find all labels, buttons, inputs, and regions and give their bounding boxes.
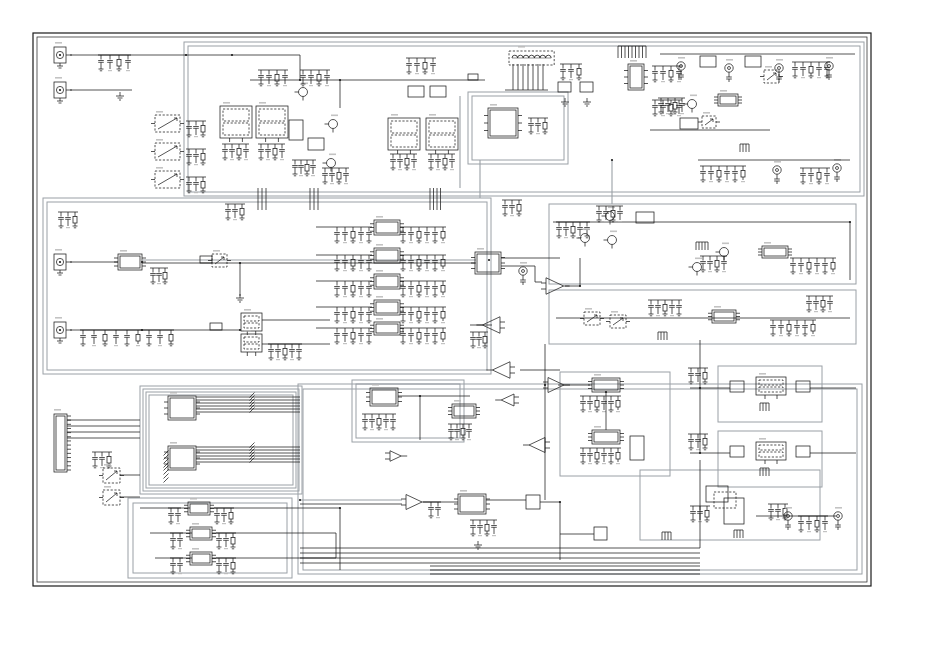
opamp-symbol-232	[523, 438, 550, 453]
rc-ladder-186	[168, 508, 181, 524]
connector-comb-83	[740, 144, 749, 152]
schematic-page	[0, 0, 950, 672]
rc-ladder-132	[400, 281, 446, 297]
rc-ladder-44	[428, 154, 455, 170]
component-box-239	[796, 381, 810, 392]
transistor-symbol-32	[151, 139, 184, 160]
rc-ladder-56	[406, 58, 436, 74]
component-box-20	[640, 470, 820, 540]
component-box-238	[730, 381, 744, 392]
transistor-symbol-77	[760, 66, 783, 83]
transistor-symbol-105	[208, 250, 231, 267]
connector-ring-72	[725, 59, 733, 82]
transistor-symbol-162	[580, 308, 604, 325]
schematic-svg	[0, 0, 950, 672]
rc-ladder-137	[334, 328, 372, 344]
transistor-can-157	[689, 258, 703, 276]
ic-chip-177	[164, 442, 200, 470]
rc-ladder-35	[186, 149, 206, 165]
transistor-pair-box-243	[756, 438, 786, 464]
rc-ladder-146	[502, 200, 522, 216]
ic-chip-185	[184, 498, 214, 515]
rc-ladder-39	[222, 144, 249, 160]
rc-ladder-187	[214, 508, 234, 524]
ic-chip-101	[114, 250, 146, 270]
rc-ladder-249	[688, 368, 708, 384]
net-wire-94	[430, 188, 441, 210]
component-box-211	[594, 527, 607, 540]
transistor-pair-box-41	[388, 114, 420, 154]
rc-ladder-191	[170, 533, 183, 549]
connector-jack-22	[54, 42, 72, 68]
rc-ladder-80	[700, 166, 746, 182]
transistor-symbol-31	[151, 111, 184, 132]
component-box-6	[298, 384, 862, 574]
ic-chip-190	[186, 523, 216, 540]
rc-ladder-78	[792, 62, 830, 78]
transistor-can-156	[716, 243, 730, 261]
rc-ladder-43	[390, 154, 417, 170]
rc-ladder-197	[216, 558, 236, 574]
net-wire-142	[501, 266, 542, 282]
net-wire-93	[310, 188, 318, 210]
connector-ring-74	[825, 57, 833, 80]
rc-ladder-53	[300, 70, 330, 86]
component-box-18	[718, 366, 822, 422]
component-box-11	[149, 395, 293, 485]
rc-ladder-36	[186, 177, 206, 193]
rc-ladder-86	[658, 98, 685, 114]
component-box-55	[430, 86, 446, 97]
transistor-symbol-172	[99, 464, 124, 483]
rc-ladder-51	[322, 168, 349, 184]
rc-ladder-216	[362, 414, 396, 430]
connector-comb-240	[760, 403, 769, 411]
net-wire-170	[67, 420, 140, 438]
transistor-pair-box-37	[220, 102, 252, 142]
rc-ladder-210	[470, 520, 497, 536]
rc-ladder-235	[470, 332, 488, 348]
net-wire-92	[258, 188, 266, 210]
transistor-pair-box-237	[756, 373, 786, 399]
transistor-pair-box-42	[426, 114, 458, 154]
ic-chip-68	[624, 60, 648, 90]
net-wire-58	[513, 64, 543, 90]
rc-ladder-225	[580, 448, 621, 464]
rc-ladder-62	[560, 64, 582, 80]
transistor-can-47	[295, 83, 309, 101]
component-box-48	[289, 120, 303, 140]
ic-chip-140	[471, 248, 505, 274]
rc-ladder-61	[528, 118, 548, 134]
ic-chip-165	[708, 306, 740, 323]
connector-comb-261	[662, 532, 671, 540]
component-box-21	[560, 372, 670, 476]
ic-chip-123	[370, 296, 404, 315]
rc-ladder-171	[92, 452, 112, 468]
component-box-252	[706, 486, 728, 502]
ic-chip-120	[370, 216, 404, 235]
rc-ladder-135	[400, 307, 446, 323]
rc-ladder-168	[806, 296, 833, 312]
ic-chip-124	[370, 318, 404, 335]
net-wire-179	[196, 447, 300, 462]
rc-ladder-109	[58, 212, 78, 228]
component-box-245	[796, 446, 810, 457]
ground-symbol-27	[116, 92, 124, 100]
connector-comb-67	[618, 46, 646, 58]
rc-ladder-250	[688, 434, 708, 450]
transformer-coil-57	[509, 46, 554, 65]
rc-ladder-166	[770, 320, 816, 336]
rc-ladder-125	[334, 227, 372, 243]
ic-chip-122	[370, 270, 404, 289]
ground-symbol-66	[583, 98, 591, 106]
component-box-226	[630, 436, 644, 460]
junction-dots-267	[141, 54, 851, 509]
component-box-63	[558, 82, 571, 92]
rc-ladder-119	[225, 204, 245, 220]
component-box-244	[730, 446, 744, 457]
rc-ladder-160	[596, 206, 623, 222]
net-wire-178	[196, 397, 300, 412]
rc-ladder-126	[400, 227, 446, 243]
ic-chip-60	[484, 104, 522, 138]
ic-chip-195	[186, 548, 216, 565]
rc-ladder-256	[768, 504, 788, 520]
component-box-76	[745, 56, 761, 67]
ic-chip-176	[164, 392, 200, 420]
component-box-208	[526, 495, 540, 509]
net-wire-264	[430, 566, 700, 574]
transistor-pair-box-38	[256, 102, 288, 142]
ic-chip-91	[714, 90, 742, 106]
rc-ladder-196	[170, 558, 183, 574]
component-box-75	[700, 56, 716, 67]
ic-chip-215	[366, 384, 402, 406]
transistor-pair-box-115	[241, 330, 262, 356]
connector-ring-145	[519, 262, 527, 285]
net-wire-144	[565, 258, 580, 286]
pin-header-169	[54, 409, 71, 472]
connector-ring-71	[677, 57, 685, 80]
rc-ladder-205	[428, 502, 441, 518]
connector-comb-255	[734, 530, 743, 538]
ground-symbol-108	[236, 294, 244, 302]
connector-ring-257	[784, 507, 792, 530]
rc-ladder-164	[648, 300, 682, 316]
rc-ladder-40	[258, 144, 285, 160]
net-wire-263	[300, 548, 700, 563]
rc-ladder-112	[80, 330, 174, 346]
rc-ladder-223	[580, 396, 621, 412]
component-box-64	[580, 82, 593, 92]
connector-ring-82	[833, 159, 841, 182]
rc-ladder-24	[98, 55, 131, 71]
rc-ladder-50	[292, 160, 316, 176]
rc-ladder-192	[216, 533, 236, 549]
rc-ladder-34	[186, 121, 206, 137]
connector-ring-81	[773, 161, 781, 184]
opamp-symbol-219	[385, 451, 407, 462]
transistor-symbol-173	[99, 486, 124, 505]
rc-ladder-158	[790, 258, 836, 274]
rc-ladder-118	[268, 344, 302, 360]
connector-comb-246	[760, 468, 769, 476]
component-box-19	[718, 431, 822, 487]
component-box-253	[714, 492, 736, 508]
transistor-symbol-88	[698, 112, 720, 128]
component-box-54	[408, 86, 424, 97]
transistor-symbol-163	[606, 311, 630, 328]
component-box-113	[210, 323, 222, 330]
connector-comb-153	[696, 242, 708, 250]
rc-ladder-134	[334, 307, 372, 323]
connector-jack-99	[54, 249, 72, 275]
ic-chip-206	[454, 490, 490, 514]
transistor-symbol-33	[151, 167, 184, 188]
rc-ladder-154	[700, 256, 727, 272]
rc-ladder-259	[798, 516, 828, 532]
connector-jack-25	[54, 77, 72, 103]
resistor-array-hatch-181	[250, 443, 255, 463]
rc-ladder-138	[400, 328, 446, 344]
component-box-87	[680, 118, 698, 129]
component-box-2	[43, 198, 491, 374]
connector-jack-110	[54, 317, 72, 343]
transistor-can-151	[604, 231, 618, 249]
component-box-49	[308, 138, 324, 150]
rc-ladder-106	[150, 268, 168, 284]
rc-ladder-131	[334, 281, 372, 297]
opamp-symbol-231	[495, 394, 519, 406]
connector-ring-260	[834, 507, 842, 530]
rc-ladder-52	[258, 70, 288, 86]
transistor-can-46	[323, 154, 337, 172]
rc-ladder-84	[800, 168, 830, 184]
component-box-30	[468, 74, 478, 80]
component-box-1	[188, 46, 860, 192]
component-box-152	[636, 212, 654, 223]
ic-chip-155	[758, 242, 792, 258]
connector-comb-167	[658, 332, 667, 340]
component-box-5	[549, 290, 856, 344]
transistor-can-89	[684, 95, 698, 113]
transistor-can-45	[325, 115, 339, 133]
